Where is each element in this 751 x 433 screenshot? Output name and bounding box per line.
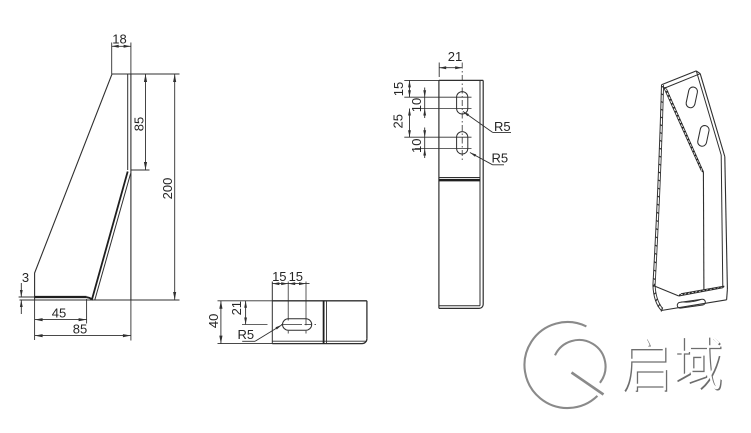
- svg-text:15: 15: [272, 269, 286, 284]
- svg-text:85: 85: [73, 322, 87, 337]
- svg-text:18: 18: [112, 32, 126, 47]
- svg-text:10: 10: [409, 98, 424, 112]
- svg-text:85: 85: [132, 117, 147, 131]
- svg-text:10: 10: [409, 139, 424, 153]
- svg-text:15: 15: [289, 269, 303, 284]
- svg-text:R5: R5: [494, 119, 511, 134]
- svg-text:R5: R5: [238, 327, 255, 342]
- svg-text:200: 200: [160, 178, 175, 200]
- svg-text:R5: R5: [492, 150, 509, 165]
- svg-text:21: 21: [229, 301, 244, 315]
- svg-text:45: 45: [52, 306, 66, 321]
- svg-text:3: 3: [22, 270, 29, 285]
- svg-text:21: 21: [448, 49, 462, 64]
- svg-text:40: 40: [206, 314, 221, 328]
- svg-text:25: 25: [390, 114, 405, 128]
- svg-text:15: 15: [391, 82, 406, 96]
